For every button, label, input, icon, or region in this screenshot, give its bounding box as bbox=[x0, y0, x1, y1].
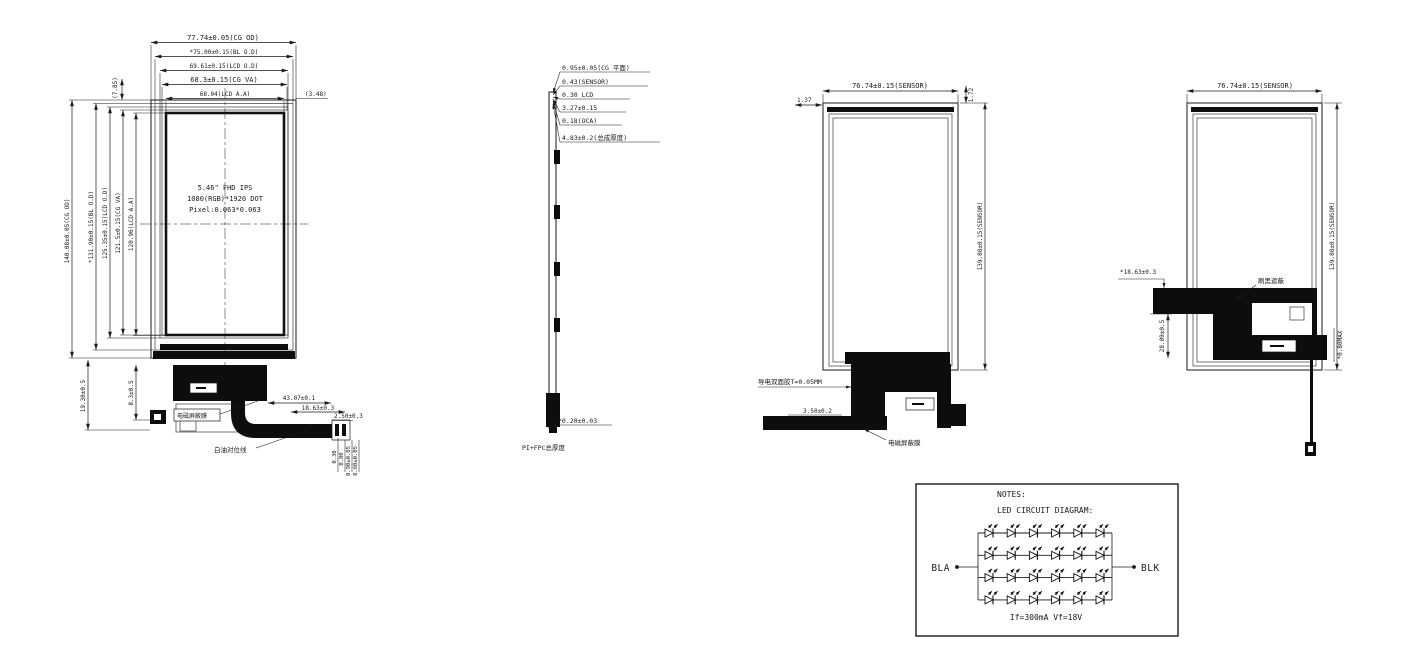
notes-title: NOTES: bbox=[997, 490, 1026, 499]
led-symbol bbox=[1029, 547, 1042, 560]
bv1-fpc-tail bbox=[763, 416, 887, 430]
lcd-outline bbox=[160, 107, 288, 338]
anode-label: BLA bbox=[931, 563, 950, 574]
dim-note-right: (3.48) bbox=[305, 91, 327, 98]
dim-aa-width: 68.04(LCD A.A) bbox=[200, 91, 251, 98]
led-symbol bbox=[1096, 524, 1109, 537]
bv1-tape-label: 导电双面胶T=0.05MM bbox=[758, 377, 822, 386]
dim-cg-od-height: 140.08±0.05(CG OD) bbox=[64, 198, 71, 263]
led-symbol bbox=[1074, 591, 1087, 604]
dim-tail-width: 18.63±0.3 bbox=[302, 405, 335, 412]
side-view: 0.95±0.05(CG 平面) 0.43(SENSOR) 0.30 LCD 3… bbox=[522, 64, 660, 452]
front-view: 77.74±0.05(CG OD) *75.00±0.15(BL O.D) 69… bbox=[64, 34, 363, 476]
cathode-node bbox=[1132, 565, 1136, 569]
bv1-connector bbox=[946, 404, 966, 426]
led-symbol bbox=[1096, 569, 1109, 582]
led-symbol bbox=[1074, 524, 1087, 537]
dim-fpc-width: 43.07±0.1 bbox=[283, 395, 316, 402]
bv1-tail-dim: 3.50±0.2 bbox=[803, 408, 832, 415]
dim-pi-fpc: *0.20±0.03 bbox=[558, 417, 597, 425]
dim-bl-od-width: *75.00±0.15(BL O.D) bbox=[190, 49, 259, 56]
stack-cg: 0.95±0.05(CG 平面) bbox=[562, 64, 630, 72]
led-symbol bbox=[1007, 591, 1020, 604]
stack-oca: 0.18(OCA) bbox=[562, 117, 597, 125]
bv1-dimensions: 76.74±0.15(SENSOR) 1.37 1.72 139.08±0.15… bbox=[795, 82, 988, 370]
led-symbol bbox=[1052, 591, 1065, 604]
panel-pixel-text: Pixel:0.063*0.063 bbox=[189, 206, 261, 214]
led-symbol bbox=[1052, 524, 1065, 537]
cg-outline bbox=[151, 100, 296, 358]
dim-small-2: 0.80 bbox=[339, 452, 345, 465]
bv1-dim-corner-right: 1.72 bbox=[968, 87, 975, 102]
bv2-fpc-arm bbox=[1153, 288, 1215, 314]
dim-note-left: (7.85) bbox=[112, 77, 119, 99]
bv2-fpc-tail bbox=[1310, 360, 1313, 442]
led-symbol bbox=[1074, 547, 1087, 560]
led-symbol bbox=[1029, 569, 1042, 582]
dim-bl-od-height: *131.90±0.15(BL O.D) bbox=[88, 191, 95, 263]
dim-lcd-od-height: 125.35±0.15(LCD O.D) bbox=[102, 187, 109, 259]
led-symbol bbox=[1007, 547, 1020, 560]
dim-cg-va-height: 121.5±0.15(CG VA) bbox=[115, 192, 122, 253]
notes-box: NOTES: LED CIRCUIT DIAGRAM: BLA BLK If=3… bbox=[916, 484, 1178, 636]
led-symbol bbox=[985, 569, 998, 582]
white-oil-label: 白油对位线 bbox=[214, 445, 247, 454]
panel-resolution-text: 1080(RGB)*1920 DOT bbox=[187, 195, 264, 203]
led-symbol bbox=[1029, 524, 1042, 537]
dim-small-4: 8.60±0.05 bbox=[353, 446, 359, 476]
led-symbol bbox=[1029, 591, 1042, 604]
led-symbol bbox=[1052, 569, 1065, 582]
bl-outline bbox=[155, 104, 293, 351]
anode-node bbox=[955, 565, 959, 569]
led-symbol bbox=[1052, 547, 1065, 560]
front-view-outline bbox=[140, 88, 308, 370]
bv1-fpc bbox=[763, 352, 966, 430]
led-symbol bbox=[1096, 591, 1109, 604]
bv2-dim-height: 139.08±0.15(SENSOR) bbox=[1329, 202, 1336, 271]
led-circuit: BLA BLK bbox=[931, 524, 1159, 604]
bottom-ledge bbox=[160, 344, 288, 350]
stack-total: 4.83±0.2(总成厚度) bbox=[562, 133, 627, 142]
side-profile bbox=[549, 92, 556, 428]
dim-cg-va-width: 68.3±0.15(CG VA) bbox=[190, 76, 257, 84]
dim-fpc-left-height: 19.30±0.5 bbox=[80, 379, 87, 412]
stack-sensor: 0.43(SENSOR) bbox=[562, 78, 609, 86]
bv2-max-dim: *0.80MAX bbox=[1337, 330, 1344, 359]
back-view-1: 76.74±0.15(SENSOR) 1.37 1.72 139.08±0.15… bbox=[758, 82, 988, 447]
dim-small-3: 0.90±0.05 bbox=[346, 446, 352, 476]
bv1-dim-height: 139.08±0.15(SENSOR) bbox=[977, 202, 984, 271]
bv2-black-label: 刷黑遮蔽 bbox=[1258, 276, 1285, 285]
led-grid bbox=[978, 524, 1112, 604]
stack-lcd: 0.30 LCD bbox=[562, 91, 593, 99]
pi-fpc-label: PI+FPC总厚度 bbox=[522, 443, 565, 452]
bv1-dim-width: 76.74±0.15(SENSOR) bbox=[852, 82, 928, 90]
fpc-connector bbox=[332, 420, 350, 440]
panel-size-text: 5.46" FHD IPS bbox=[198, 184, 253, 192]
stack-module: 3.27±0.15 bbox=[562, 104, 597, 112]
bv2-dim-width: 76.74±0.15(SENSOR) bbox=[1217, 82, 1293, 90]
led-symbol bbox=[1007, 524, 1020, 537]
led-spec: If=300mA Vf=18V bbox=[1010, 613, 1082, 622]
led-symbol bbox=[985, 591, 998, 604]
side-view-stack-dimensions: 0.95±0.05(CG 平面) 0.43(SENSOR) 0.30 LCD 3… bbox=[553, 64, 660, 142]
bv1-shield-label: 电磁屏蔽膜 bbox=[888, 438, 921, 447]
panel-center-text: 5.46" FHD IPS 1080(RGB)*1920 DOT Pixel:0… bbox=[187, 184, 264, 214]
shield-film-label: 电磁屏蔽膜 bbox=[177, 412, 207, 420]
led-symbol bbox=[1096, 547, 1109, 560]
led-symbol bbox=[1007, 569, 1020, 582]
led-symbol bbox=[985, 547, 998, 560]
drawing-canvas: 77.74±0.05(CG OD) *75.00±0.15(BL O.D) 69… bbox=[0, 0, 1410, 661]
dim-lcd-od-width: 69.61±0.15(LCD O.D) bbox=[190, 63, 259, 70]
dim-cg-od-width: 77.74±0.05(CG OD) bbox=[187, 34, 259, 42]
dim-small-1: 0.30 bbox=[332, 450, 338, 463]
led-symbol bbox=[985, 524, 998, 537]
bv2-fpc-dim: *18.63±0.3 bbox=[1120, 269, 1157, 276]
bottom-bezel bbox=[153, 351, 295, 359]
bv2-v-dim: 28.09±0.5 bbox=[1159, 319, 1166, 352]
dim-aa-height: 120.96(LCD A.A) bbox=[128, 197, 135, 251]
notes-subtitle: LED CIRCUIT DIAGRAM: bbox=[997, 506, 1093, 515]
led-symbol bbox=[1074, 569, 1087, 582]
side-view-bottom-dimension: *0.20±0.03 PI+FPC总厚度 bbox=[522, 417, 612, 452]
dim-fpc-inner-height: 8.3±0.5 bbox=[128, 380, 135, 406]
fpc-trunk bbox=[173, 365, 267, 401]
bv1-dim-corner-left: 1.37 bbox=[797, 97, 812, 104]
dim-tail-end: 2.50±0.3 bbox=[334, 413, 363, 420]
bv1-outline bbox=[823, 103, 958, 370]
cathode-label: BLK bbox=[1141, 563, 1160, 574]
bv2-fpc bbox=[1153, 288, 1327, 456]
back-view-2: 76.74±0.15(SENSOR) 139.08±0.15(SENSOR) *… bbox=[1118, 82, 1344, 456]
